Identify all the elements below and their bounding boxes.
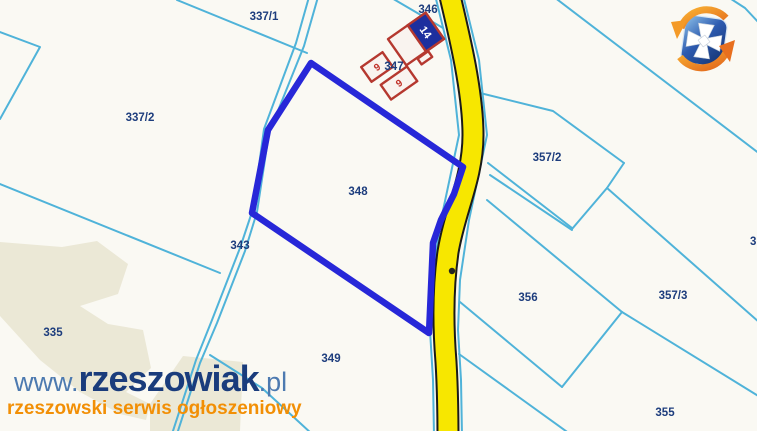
lane-edge-line	[490, 175, 572, 230]
parcel-label: 357/3	[659, 290, 688, 302]
parcel-label: 343	[230, 240, 249, 252]
parcel-label: 335	[43, 327, 63, 339]
parcel-label: 348	[348, 186, 368, 198]
rzeszowiak-logo-icon	[668, 5, 740, 77]
cadastral-map: 14 9 9 337/1 346 337/2 347 357/2 348 343…	[0, 0, 757, 431]
landuse-patch	[0, 241, 151, 420]
parcel-boundary-line	[0, 32, 40, 119]
parcel-boundary-line	[607, 188, 757, 323]
parcel-label: 337/2	[126, 112, 155, 124]
highlighted-parcel-outline	[252, 63, 463, 333]
parcel-boundary-line	[622, 312, 757, 397]
parcel-boundary-line	[459, 354, 570, 431]
parcel-label: 346	[418, 4, 437, 16]
buildings: 14 9 9	[361, 13, 448, 100]
parcel-boundary-line	[562, 312, 622, 387]
parcel-label: 355	[655, 407, 675, 419]
map-viewport[interactable]: 14 9 9 337/1 346 337/2 347 357/2 348 343…	[0, 0, 757, 431]
stream-bank-line	[177, 0, 318, 431]
shield-cross-icon	[668, 5, 740, 77]
parcel-label: 357/2	[533, 152, 562, 164]
parcel-boundary-line	[177, 0, 307, 53]
road	[444, 0, 473, 431]
lane-edge-line	[488, 163, 572, 228]
parcel-labels: 337/1 346 337/2 347 357/2 348 343 3 335 …	[43, 4, 756, 419]
parcel-boundary-line	[460, 302, 562, 387]
parcel-label: 3	[750, 236, 756, 248]
parcel-label: 356	[518, 292, 537, 304]
parcel-label: 349	[321, 353, 340, 365]
parcel-label: 337/1	[250, 11, 279, 23]
parcel-boundary-line	[487, 200, 622, 312]
parcel-label: 347	[384, 61, 403, 73]
road-point-marker	[449, 268, 455, 274]
